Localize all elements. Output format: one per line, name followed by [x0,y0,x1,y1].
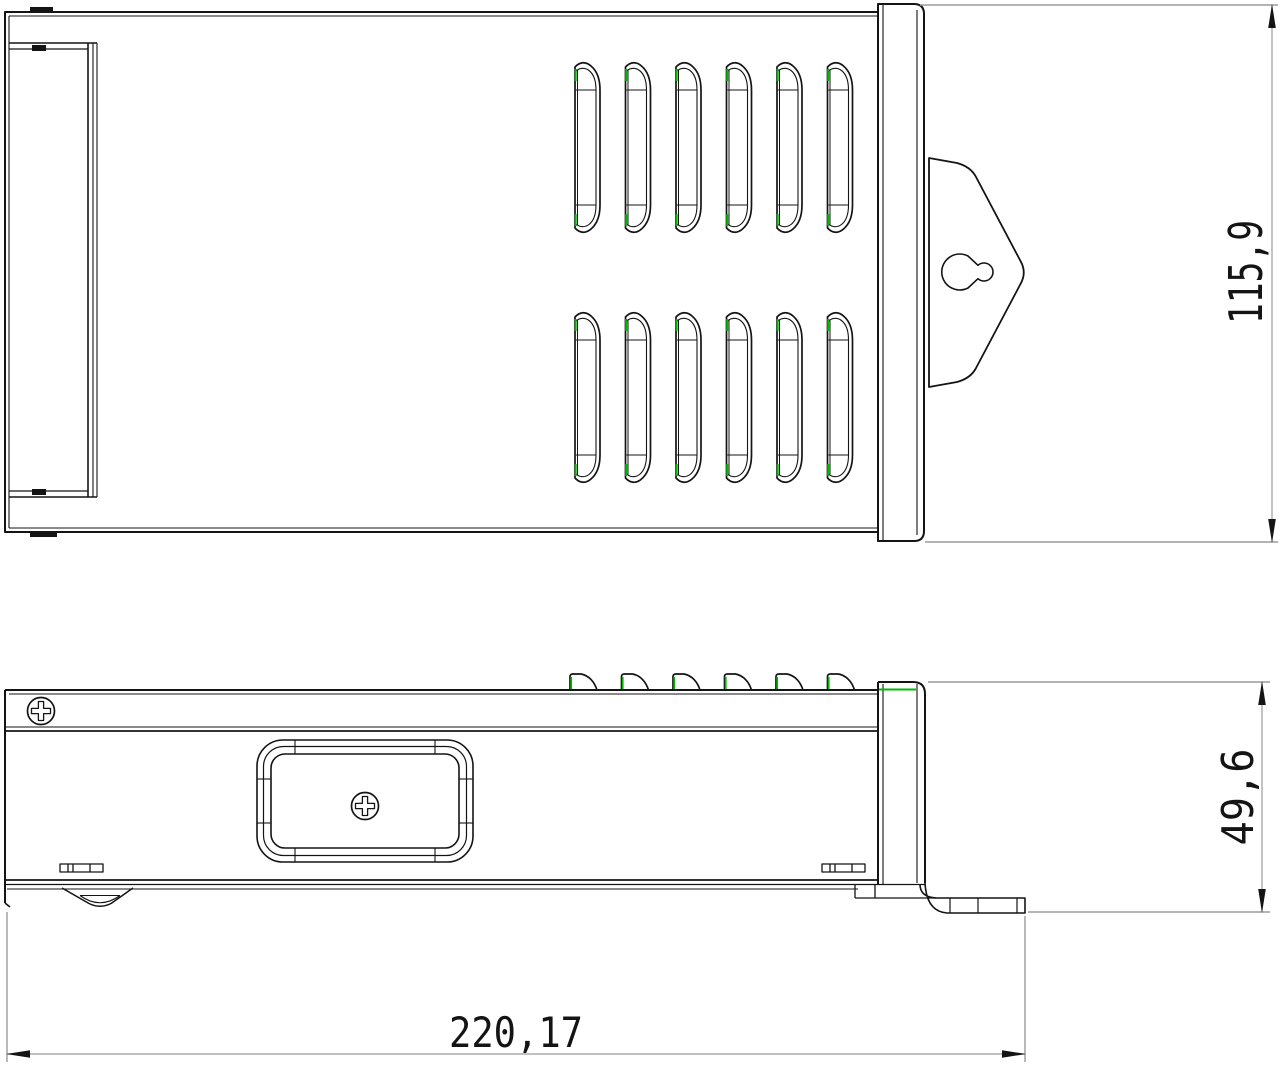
vent-slits-right [822,864,865,872]
dimension-housing-height: 115,9 [920,4,1278,543]
arrowhead-left [6,1050,30,1058]
terminal-block [9,43,97,497]
louver-grid [575,63,853,483]
arrowhead-down [1258,889,1266,913]
end-cap [878,4,924,541]
dim-text-115-9: 115,9 [1219,220,1273,324]
end-cap-side [878,682,925,884]
side-view [5,674,1025,913]
dimension-profile-height: 49,6 [928,681,1270,913]
cad-drawing-canvas: 115,9 49,6 220,17 [0,0,1280,1065]
arrowhead-up [1258,681,1266,705]
arrowhead-up [1268,4,1276,28]
vent-slits-left [60,864,103,872]
label-recess [257,740,473,862]
dim-text-49-6: 49,6 [1213,749,1264,846]
top-view [5,4,1024,541]
case-tab-top [30,7,53,12]
arrowhead-right [1002,1050,1026,1058]
case-tab-bottom [30,532,57,537]
l-bracket-foot [855,883,1025,913]
cover-screw [28,698,55,725]
mounting-bracket [929,158,1024,387]
dim-text-220-17: 220,17 [449,1008,583,1057]
fin-row [570,674,855,690]
recess-screw [352,793,379,820]
technical-drawing: 115,9 49,6 220,17 [0,0,1280,1065]
dimension-overall-length: 220,17 [6,912,1026,1062]
rubber-foot [62,888,133,906]
arrowhead-down [1268,519,1276,543]
keyhole-slot [942,254,993,290]
